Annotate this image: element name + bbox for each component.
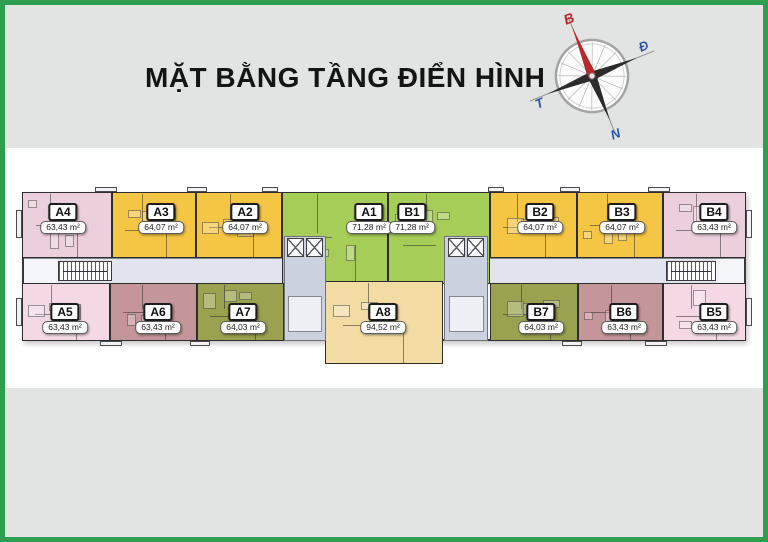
unit-code-badge: A3 [146, 203, 175, 221]
unit-area-badge: 63,43 m² [691, 321, 737, 334]
corridor-endcap [716, 259, 744, 283]
unit-area-badge: 63,43 m² [601, 321, 647, 334]
furniture-outline [28, 200, 37, 208]
balcony-tab [190, 341, 210, 346]
elevator-shaft-icon [448, 238, 465, 257]
unit-area-badge: 64,07 m² [222, 221, 268, 234]
interior-wall [317, 194, 318, 233]
unit-area-badge: 63,43 m² [135, 321, 181, 334]
balcony-tab [746, 210, 752, 238]
unit-code-badge: A1 [354, 203, 383, 221]
interior-wall [77, 230, 78, 258]
furniture-outline [203, 293, 216, 309]
unit-code-badge: B3 [607, 203, 636, 221]
stair-divider [63, 271, 107, 272]
interior-wall [403, 245, 436, 246]
unit-code-badge: B4 [699, 203, 728, 221]
elevator-shaft-icon [306, 238, 323, 257]
balcony-tab [95, 187, 117, 192]
corridor-endcap [24, 259, 58, 283]
furniture-outline [333, 305, 350, 317]
stairwell [666, 261, 716, 281]
unit-code-badge: A6 [143, 303, 172, 321]
unit-code-badge: B2 [525, 203, 554, 221]
elevator-shaft-icon [287, 238, 304, 257]
furniture-outline [679, 321, 692, 329]
furniture-outline [507, 301, 524, 317]
unit-area-badge: 64,07 m² [599, 221, 645, 234]
core-room [288, 296, 322, 332]
furniture-outline [65, 235, 74, 247]
balcony-tab [187, 187, 207, 192]
balcony-tab [648, 187, 670, 192]
furniture-outline [127, 314, 136, 326]
interior-wall [355, 245, 356, 284]
interior-wall [634, 230, 635, 258]
core-room [449, 296, 484, 332]
furniture-outline [202, 222, 219, 234]
unit-code-badge: A8 [368, 303, 397, 321]
interior-wall [676, 316, 703, 317]
interior-wall [691, 285, 692, 309]
floor-plan: A463,43 m²A364,07 m²A264,07 m²A171,28 m²… [0, 0, 768, 542]
balcony-tab [560, 187, 580, 192]
stairwell [58, 261, 112, 281]
furniture-outline [584, 312, 593, 320]
furniture-outline [437, 212, 450, 220]
unit-area-badge: 94,52 m² [360, 321, 406, 334]
furniture-outline [346, 245, 355, 261]
interior-wall [720, 230, 721, 258]
unit-code-badge: A5 [50, 303, 79, 321]
unit-area-badge: 71,28 m² [389, 221, 435, 234]
unit-code-badge: B1 [397, 203, 426, 221]
furniture-outline [583, 231, 592, 239]
furniture-outline [50, 233, 59, 249]
furniture-outline [28, 305, 45, 317]
furniture-outline [128, 210, 141, 218]
balcony-tab [562, 341, 582, 346]
unit-code-badge: A4 [48, 203, 77, 221]
unit-code-badge: A7 [228, 303, 257, 321]
unit-area-badge: 63,43 m² [42, 321, 88, 334]
balcony-tab [16, 210, 22, 238]
unit-area-badge: 71,28 m² [346, 221, 392, 234]
furniture-outline [239, 292, 252, 300]
unit-code-badge: B5 [699, 303, 728, 321]
unit-area-badge: 64,07 m² [138, 221, 184, 234]
stair-divider [671, 271, 711, 272]
balcony-tab [262, 187, 278, 192]
unit-area-badge: 64,03 m² [220, 321, 266, 334]
elevator-shaft-icon [467, 238, 484, 257]
furniture-outline [679, 204, 692, 212]
balcony-tab [16, 298, 22, 326]
unit-code-badge: A2 [230, 203, 259, 221]
balcony-tab [100, 341, 122, 346]
balcony-tab [746, 298, 752, 326]
unit-area-badge: 63,43 m² [691, 221, 737, 234]
balcony-tab [645, 341, 667, 346]
interior-wall [166, 230, 167, 258]
unit-code-badge: B7 [526, 303, 555, 321]
balcony-tab [488, 187, 504, 192]
furniture-outline [224, 290, 237, 302]
unit-code-badge: B6 [609, 303, 638, 321]
unit-area-badge: 63,43 m² [40, 221, 86, 234]
unit-area-badge: 64,03 m² [518, 321, 564, 334]
unit-area-badge: 64,07 m² [517, 221, 563, 234]
page: MẶT BẰNG TẦNG ĐIỂN HÌNH B Đ [0, 0, 768, 542]
interior-wall [545, 230, 546, 258]
